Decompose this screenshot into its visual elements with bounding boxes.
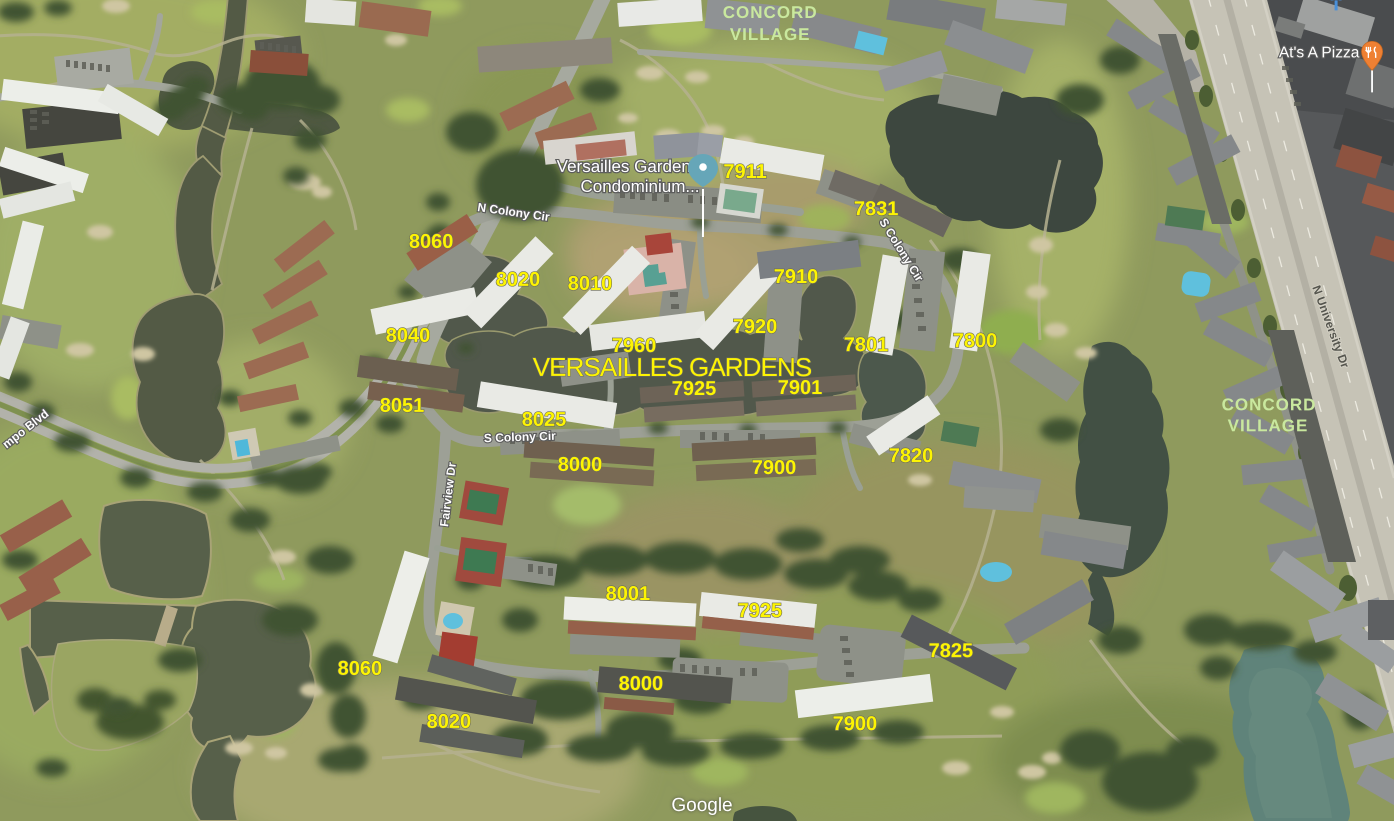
svg-text:VILLAGE: VILLAGE <box>1228 416 1309 435</box>
svg-text:Condominium...: Condominium... <box>580 177 699 196</box>
svg-text:CONCORD: CONCORD <box>1222 395 1317 414</box>
svg-text:VERSAILLES GARDENS: VERSAILLES GARDENS <box>533 352 812 382</box>
svg-text:At's A Pizza: At's A Pizza <box>1279 44 1360 61</box>
svg-text:7801: 7801 <box>844 334 889 356</box>
svg-text:Google: Google <box>671 795 732 816</box>
svg-text:8020: 8020 <box>496 269 541 291</box>
svg-text:CONCORD: CONCORD <box>723 3 818 22</box>
svg-text:7925: 7925 <box>738 600 783 622</box>
svg-text:7900: 7900 <box>752 457 797 479</box>
svg-text:7910: 7910 <box>774 266 819 288</box>
svg-text:7800: 7800 <box>953 330 998 352</box>
svg-text:7900: 7900 <box>833 713 878 735</box>
svg-text:7820: 7820 <box>889 445 934 467</box>
svg-text:8060: 8060 <box>409 231 454 253</box>
svg-text:8020: 8020 <box>427 711 472 733</box>
svg-text:8001: 8001 <box>606 583 651 605</box>
svg-text:8060: 8060 <box>338 658 383 680</box>
svg-text:8000: 8000 <box>558 454 603 476</box>
svg-text:8000: 8000 <box>619 673 664 695</box>
svg-text:7825: 7825 <box>929 640 974 662</box>
svg-text:Versailles Gardens: Versailles Gardens <box>557 157 700 176</box>
svg-text:7911: 7911 <box>723 161 766 183</box>
svg-text:8025: 8025 <box>522 409 567 431</box>
svg-text:VILLAGE: VILLAGE <box>730 25 811 44</box>
svg-text:8040: 8040 <box>386 325 431 347</box>
svg-text:7831: 7831 <box>854 198 899 220</box>
svg-text:8051: 8051 <box>380 395 425 417</box>
svg-text:S Colony Cir: S Colony Cir <box>484 429 557 446</box>
svg-text:7920: 7920 <box>733 316 778 338</box>
svg-text:8010: 8010 <box>568 273 613 295</box>
